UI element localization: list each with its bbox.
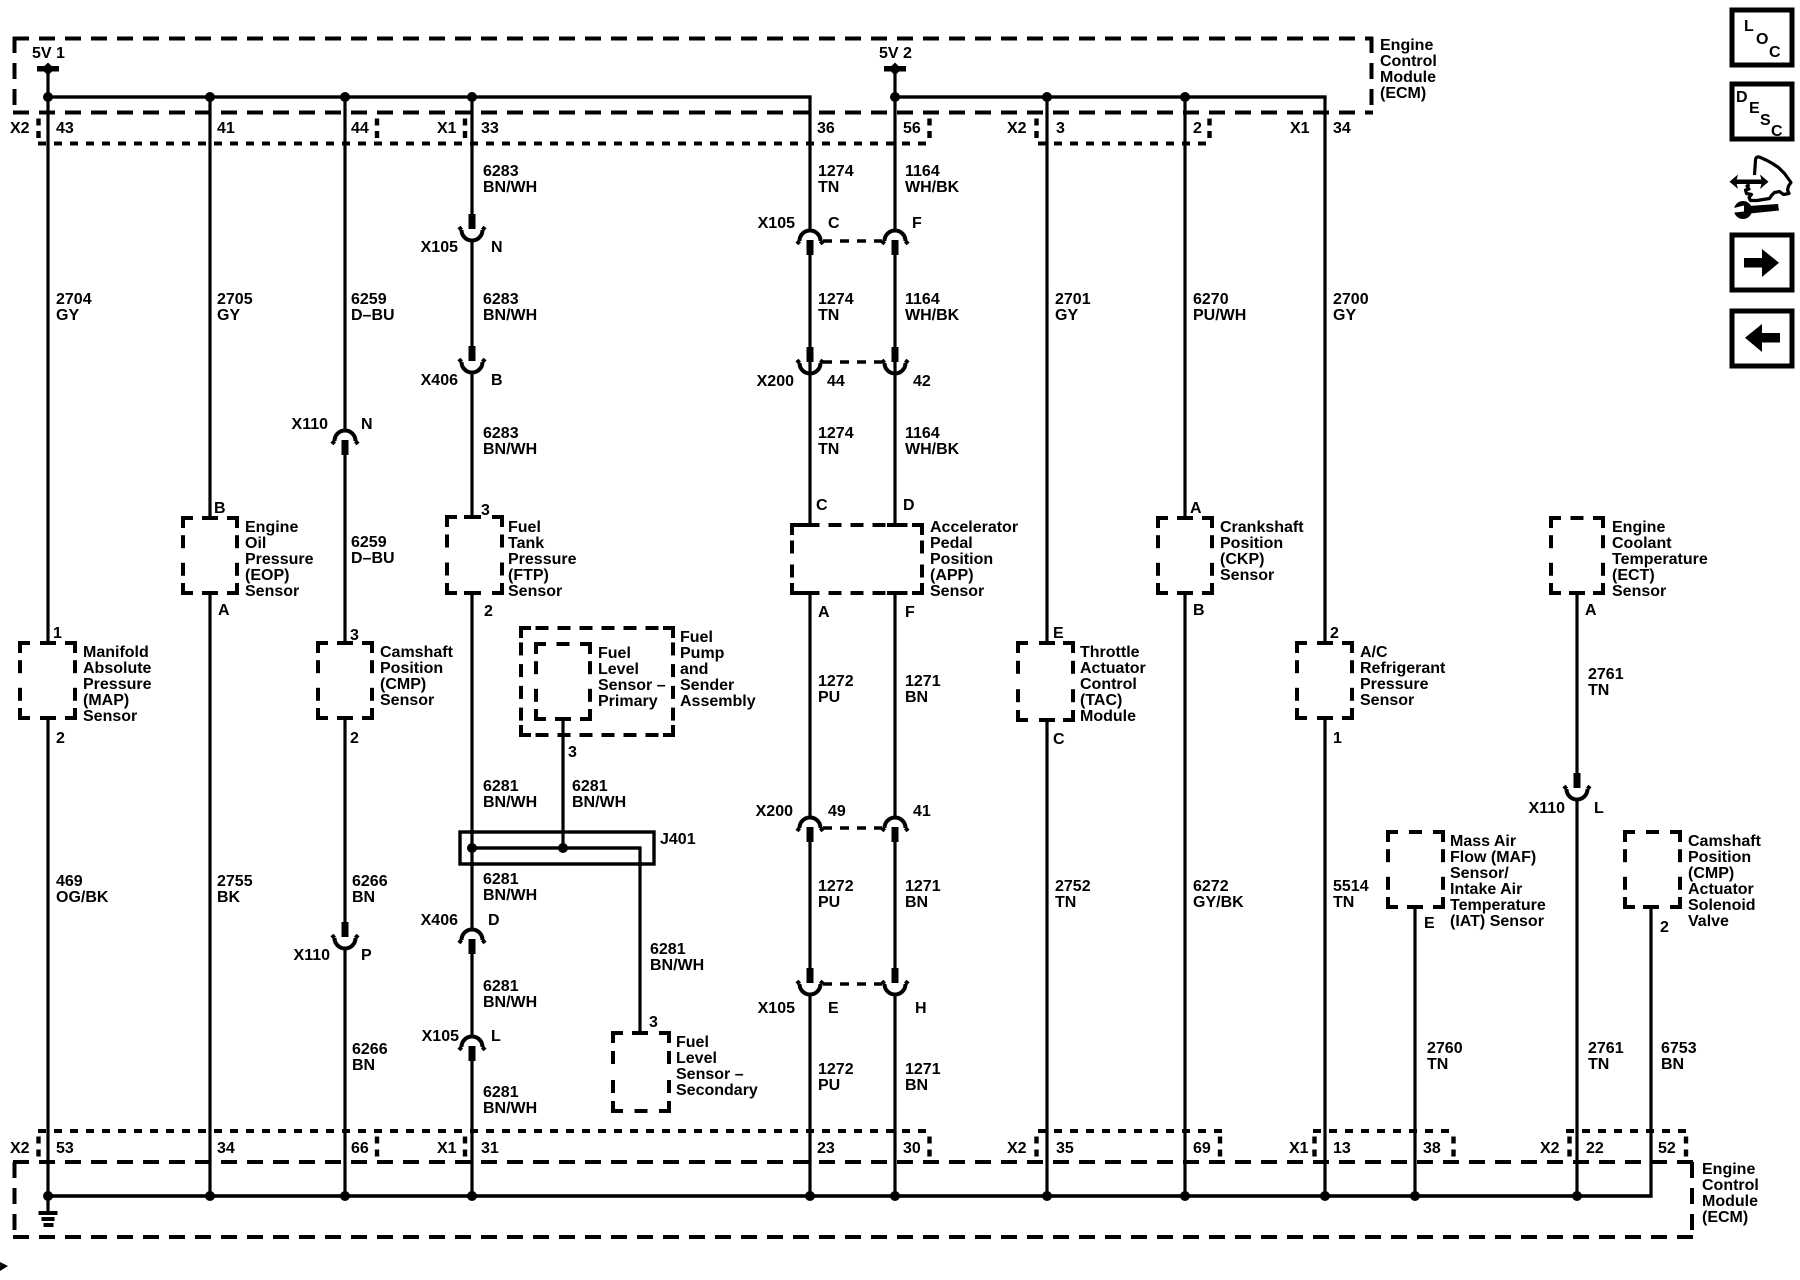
svg-text:BN/WH: BN/WH	[483, 887, 537, 904]
svg-text:Pressure: Pressure	[83, 676, 152, 693]
svg-text:Intake Air: Intake Air	[1450, 881, 1522, 898]
svg-text:2: 2	[1660, 919, 1669, 936]
svg-text:Fuel: Fuel	[508, 519, 541, 536]
svg-text:PU: PU	[818, 689, 840, 706]
svg-text:Throttle: Throttle	[1080, 644, 1140, 661]
svg-text:GY: GY	[1055, 307, 1078, 324]
svg-text:D: D	[903, 497, 915, 514]
svg-text:D–BU: D–BU	[351, 550, 395, 567]
svg-text:Pressure: Pressure	[1360, 676, 1429, 693]
svg-text:1164: 1164	[905, 425, 940, 442]
svg-text:2755: 2755	[217, 873, 253, 890]
svg-text:Tank: Tank	[508, 535, 544, 552]
svg-text:Pedal: Pedal	[930, 535, 973, 552]
svg-text:36: 36	[817, 120, 835, 137]
svg-text:Sensor: Sensor	[380, 692, 434, 709]
svg-text:X105: X105	[758, 1000, 795, 1017]
svg-text:BN: BN	[352, 889, 375, 906]
svg-text:P: P	[361, 947, 372, 964]
svg-text:GY/BK: GY/BK	[1193, 894, 1244, 911]
svg-text:L: L	[1744, 18, 1754, 35]
svg-text:(CMP): (CMP)	[1688, 865, 1734, 882]
svg-text:Control: Control	[1080, 676, 1137, 693]
svg-text:Module: Module	[1380, 69, 1436, 86]
svg-text:TN: TN	[1588, 682, 1609, 699]
svg-text:56: 56	[903, 120, 921, 137]
svg-text:Level: Level	[598, 661, 639, 678]
svg-text:TN: TN	[818, 307, 839, 324]
svg-text:Oil: Oil	[245, 535, 266, 552]
svg-text:41: 41	[913, 803, 931, 820]
svg-text:6281: 6281	[483, 778, 519, 795]
svg-text:Pressure: Pressure	[508, 551, 577, 568]
svg-text:1274: 1274	[818, 291, 854, 308]
svg-text:6281: 6281	[650, 941, 686, 958]
svg-text:42: 42	[913, 373, 931, 390]
svg-text:2: 2	[1193, 120, 1202, 137]
svg-text:33: 33	[481, 120, 499, 137]
svg-text:X1: X1	[1290, 120, 1310, 137]
svg-text:5V 2: 5V 2	[879, 45, 912, 62]
svg-text:X105: X105	[421, 239, 458, 256]
svg-text:Mass Air: Mass Air	[1450, 833, 1516, 850]
svg-text:B: B	[1193, 602, 1205, 619]
svg-text:X2: X2	[10, 120, 30, 137]
svg-text:A/C: A/C	[1360, 644, 1388, 661]
svg-text:Position: Position	[1688, 849, 1751, 866]
svg-text:BN/WH: BN/WH	[483, 307, 537, 324]
svg-text:2: 2	[350, 730, 359, 747]
svg-text:Engine: Engine	[1702, 1161, 1755, 1178]
svg-text:(ECT): (ECT)	[1612, 567, 1655, 584]
svg-text:BN: BN	[905, 894, 928, 911]
svg-text:D: D	[1736, 89, 1748, 106]
svg-text:2: 2	[1330, 625, 1339, 642]
svg-text:1272: 1272	[818, 878, 854, 895]
svg-text:69: 69	[1193, 1140, 1211, 1157]
svg-text:B: B	[491, 372, 503, 389]
svg-text:Accelerator: Accelerator	[930, 519, 1018, 536]
svg-text:Sensor: Sensor	[1220, 567, 1274, 584]
svg-text:2: 2	[56, 730, 65, 747]
svg-text:44: 44	[827, 373, 845, 390]
svg-text:O: O	[1756, 31, 1768, 48]
svg-text:Module: Module	[1080, 708, 1136, 725]
svg-text:BN/WH: BN/WH	[650, 957, 704, 974]
svg-text:66: 66	[351, 1140, 369, 1157]
svg-text:(CMP): (CMP)	[380, 676, 426, 693]
svg-text:Manifold: Manifold	[83, 644, 149, 661]
svg-text:469: 469	[56, 873, 83, 890]
svg-text:23: 23	[817, 1140, 835, 1157]
svg-text:Absolute: Absolute	[83, 660, 152, 677]
svg-text:X2: X2	[1540, 1140, 1560, 1157]
svg-text:BN/WH: BN/WH	[483, 994, 537, 1011]
svg-text:3: 3	[568, 744, 577, 761]
svg-text:N: N	[491, 239, 503, 256]
svg-text:6272: 6272	[1193, 878, 1229, 895]
svg-text:L: L	[1594, 800, 1604, 817]
svg-text:(ECM): (ECM)	[1702, 1209, 1748, 1226]
svg-text:(MAP): (MAP)	[83, 692, 129, 709]
svg-text:and: and	[680, 661, 708, 678]
svg-text:X105: X105	[758, 215, 795, 232]
svg-text:Position: Position	[930, 551, 993, 568]
svg-text:13: 13	[1333, 1140, 1351, 1157]
svg-text:30: 30	[903, 1140, 921, 1157]
svg-text:C: C	[1771, 123, 1783, 140]
svg-text:Temperature: Temperature	[1612, 551, 1708, 568]
svg-text:Engine: Engine	[245, 519, 298, 536]
svg-text:31: 31	[481, 1140, 499, 1157]
svg-text:Pump: Pump	[680, 645, 725, 662]
svg-text:BN: BN	[905, 1077, 928, 1094]
svg-text:TN: TN	[1333, 894, 1354, 911]
svg-text:2760: 2760	[1427, 1040, 1463, 1057]
svg-text:X1: X1	[1289, 1140, 1309, 1157]
svg-text:Pressure: Pressure	[245, 551, 314, 568]
svg-text:X105: X105	[422, 1028, 459, 1045]
svg-text:E: E	[1424, 915, 1435, 932]
svg-text:1: 1	[53, 625, 62, 642]
svg-text:Module: Module	[1702, 1193, 1758, 1210]
svg-text:2761: 2761	[1588, 666, 1624, 683]
svg-text:41: 41	[217, 120, 235, 137]
svg-text:3: 3	[649, 1014, 658, 1031]
svg-text:Camshaft: Camshaft	[1688, 833, 1762, 850]
svg-text:Solenoid: Solenoid	[1688, 897, 1756, 914]
svg-text:53: 53	[56, 1140, 74, 1157]
svg-text:1164: 1164	[905, 291, 940, 308]
svg-text:TN: TN	[818, 179, 839, 196]
svg-text:PU: PU	[818, 1077, 840, 1094]
svg-text:Sensor: Sensor	[1612, 583, 1666, 600]
svg-text:X406: X406	[421, 372, 458, 389]
svg-text:L: L	[491, 1028, 501, 1045]
svg-text:38: 38	[1423, 1140, 1441, 1157]
svg-text:(ECM): (ECM)	[1380, 85, 1426, 102]
svg-text:6281: 6281	[572, 778, 608, 795]
svg-text:WH/BK: WH/BK	[905, 307, 960, 324]
svg-text:Control: Control	[1702, 1177, 1759, 1194]
svg-text:52: 52	[1658, 1140, 1676, 1157]
svg-text:WH/BK: WH/BK	[905, 179, 960, 196]
svg-text:D–BU: D–BU	[351, 307, 395, 324]
svg-text:44: 44	[351, 120, 369, 137]
svg-text:PU: PU	[818, 894, 840, 911]
svg-text:Valve: Valve	[1688, 913, 1729, 930]
svg-text:Sensor: Sensor	[508, 583, 562, 600]
svg-text:GY: GY	[1333, 307, 1356, 324]
svg-text:3: 3	[481, 502, 490, 519]
svg-text:Fuel: Fuel	[680, 629, 713, 646]
svg-text:A: A	[1585, 602, 1597, 619]
svg-text:2705: 2705	[217, 291, 253, 308]
svg-text:GY: GY	[56, 307, 79, 324]
svg-text:E: E	[1053, 625, 1064, 642]
svg-text:X110: X110	[1529, 800, 1566, 817]
svg-text:(EOP): (EOP)	[245, 567, 289, 584]
svg-text:2700: 2700	[1333, 291, 1369, 308]
svg-text:2752: 2752	[1055, 878, 1091, 895]
svg-text:2761: 2761	[1588, 1040, 1624, 1057]
svg-text:TN: TN	[818, 441, 839, 458]
svg-text:(TAC): (TAC)	[1080, 692, 1122, 709]
svg-text:6753: 6753	[1661, 1040, 1697, 1057]
svg-text:6283: 6283	[483, 163, 519, 180]
svg-text:X200: X200	[757, 373, 794, 390]
svg-text:(IAT) Sensor: (IAT) Sensor	[1450, 913, 1544, 930]
svg-text:6259: 6259	[351, 534, 387, 551]
svg-text:1271: 1271	[905, 673, 941, 690]
svg-text:34: 34	[1333, 120, 1351, 137]
svg-text:34: 34	[217, 1140, 235, 1157]
svg-text:(FTP): (FTP)	[508, 567, 549, 584]
svg-text:J401: J401	[660, 831, 696, 848]
svg-text:B: B	[214, 500, 226, 517]
svg-text:1: 1	[1333, 730, 1342, 747]
svg-text:6281: 6281	[483, 871, 519, 888]
svg-text:C: C	[1053, 731, 1065, 748]
svg-text:2: 2	[484, 603, 493, 620]
svg-text:Camshaft: Camshaft	[380, 644, 454, 661]
svg-text:6281: 6281	[483, 978, 519, 995]
svg-text:E: E	[1749, 100, 1760, 117]
svg-text:Refrigerant: Refrigerant	[1360, 660, 1446, 677]
svg-text:1272: 1272	[818, 1061, 854, 1078]
svg-text:Sensor/: Sensor/	[1450, 865, 1509, 882]
svg-text:Actuator: Actuator	[1080, 660, 1146, 677]
svg-text:Engine: Engine	[1612, 519, 1665, 536]
svg-text:3: 3	[350, 627, 359, 644]
svg-text:X2: X2	[1007, 120, 1027, 137]
svg-text:Engine: Engine	[1380, 37, 1433, 54]
svg-text:6283: 6283	[483, 425, 519, 442]
svg-text:Primary: Primary	[598, 693, 658, 710]
svg-text:Sensor: Sensor	[1360, 692, 1414, 709]
svg-text:S: S	[1760, 112, 1771, 129]
svg-text:Flow (MAF): Flow (MAF)	[1450, 849, 1536, 866]
svg-text:35: 35	[1056, 1140, 1074, 1157]
svg-text:6266: 6266	[352, 873, 388, 890]
svg-text:22: 22	[1586, 1140, 1604, 1157]
svg-text:5514: 5514	[1333, 878, 1369, 895]
svg-text:BK: BK	[217, 889, 241, 906]
svg-text:Coolant: Coolant	[1612, 535, 1672, 552]
svg-text:Sender: Sender	[680, 677, 734, 694]
svg-text:BN/WH: BN/WH	[483, 1100, 537, 1117]
svg-text:C: C	[816, 497, 828, 514]
svg-text:Position: Position	[1220, 535, 1283, 552]
svg-text:Position: Position	[380, 660, 443, 677]
svg-text:D: D	[488, 912, 500, 929]
svg-text:F: F	[905, 604, 915, 621]
svg-text:6281: 6281	[483, 1084, 519, 1101]
svg-text:BN: BN	[905, 689, 928, 706]
svg-text:Sensor: Sensor	[83, 708, 137, 725]
svg-text:Assembly: Assembly	[680, 693, 756, 710]
svg-text:Sensor –: Sensor –	[598, 677, 666, 694]
svg-text:Fuel: Fuel	[598, 645, 631, 662]
svg-text:A: A	[1190, 500, 1202, 517]
svg-text:TN: TN	[1055, 894, 1076, 911]
svg-text:C: C	[1769, 44, 1781, 61]
svg-text:1271: 1271	[905, 878, 941, 895]
svg-text:X406: X406	[421, 912, 458, 929]
svg-text:BN/WH: BN/WH	[483, 794, 537, 811]
svg-text:Level: Level	[676, 1050, 717, 1067]
svg-text:X110: X110	[294, 947, 331, 964]
svg-text:N: N	[361, 416, 373, 433]
svg-text:X1: X1	[437, 1140, 457, 1157]
svg-text:BN/WH: BN/WH	[483, 441, 537, 458]
svg-text:WH/BK: WH/BK	[905, 441, 960, 458]
svg-text:BN/WH: BN/WH	[572, 794, 626, 811]
svg-text:BN/WH: BN/WH	[483, 179, 537, 196]
svg-text:BN: BN	[1661, 1056, 1684, 1073]
svg-text:2704: 2704	[56, 291, 92, 308]
svg-text:C: C	[828, 215, 840, 232]
svg-text:F: F	[912, 215, 922, 232]
svg-text:5V 1: 5V 1	[32, 45, 65, 62]
svg-text:E: E	[828, 1000, 839, 1017]
svg-text:A: A	[818, 604, 830, 621]
svg-text:Sensor: Sensor	[245, 583, 299, 600]
svg-text:TN: TN	[1427, 1056, 1448, 1073]
svg-text:Temperature: Temperature	[1450, 897, 1546, 914]
svg-text:6266: 6266	[352, 1041, 388, 1058]
svg-text:1164: 1164	[905, 163, 940, 180]
svg-text:Sensor –: Sensor –	[676, 1066, 744, 1083]
svg-text:A: A	[218, 602, 230, 619]
svg-text:TN: TN	[1588, 1056, 1609, 1073]
svg-text:1271: 1271	[905, 1061, 941, 1078]
svg-text:OG/BK: OG/BK	[56, 889, 109, 906]
svg-text:Control: Control	[1380, 53, 1437, 70]
svg-text:49: 49	[828, 803, 846, 820]
svg-text:6270: 6270	[1193, 291, 1229, 308]
svg-text:43: 43	[56, 120, 74, 137]
svg-text:X2: X2	[10, 1140, 30, 1157]
svg-text:(APP): (APP)	[930, 567, 974, 584]
svg-text:Actuator: Actuator	[1688, 881, 1754, 898]
svg-text:BN: BN	[352, 1057, 375, 1074]
svg-text:6259: 6259	[351, 291, 387, 308]
svg-text:GY: GY	[217, 307, 240, 324]
svg-text:Fuel: Fuel	[676, 1034, 709, 1051]
svg-text:X110: X110	[292, 416, 329, 433]
svg-text:Sensor: Sensor	[930, 583, 984, 600]
svg-text:6283: 6283	[483, 291, 519, 308]
svg-text:1274: 1274	[818, 163, 854, 180]
svg-text:X200: X200	[756, 803, 793, 820]
svg-text:X1: X1	[437, 120, 457, 137]
svg-text:Crankshaft: Crankshaft	[1220, 519, 1304, 536]
svg-text:Secondary: Secondary	[676, 1082, 758, 1099]
svg-text:PU/WH: PU/WH	[1193, 307, 1246, 324]
svg-text:3: 3	[1056, 120, 1065, 137]
svg-text:(CKP): (CKP)	[1220, 551, 1264, 568]
svg-text:X2: X2	[1007, 1140, 1027, 1157]
svg-text:H: H	[915, 1000, 927, 1017]
svg-text:1272: 1272	[818, 673, 854, 690]
svg-text:2701: 2701	[1055, 291, 1091, 308]
svg-text:1274: 1274	[818, 425, 854, 442]
